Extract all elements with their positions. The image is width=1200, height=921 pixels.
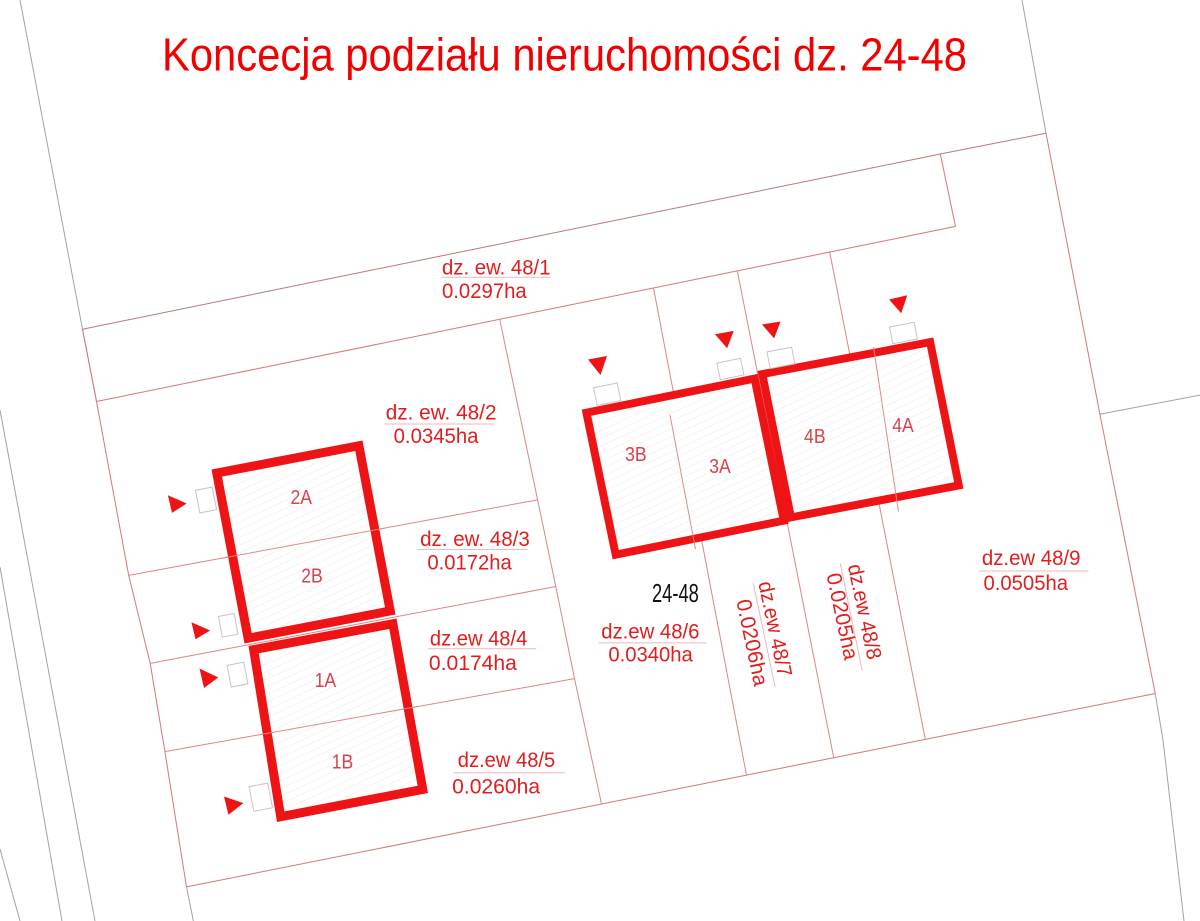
svg-text:0.0340ha: 0.0340ha [608, 643, 693, 666]
svg-text:dz.ew 48/9: dz.ew 48/9 [982, 547, 1081, 570]
svg-text:3B: 3B [625, 444, 647, 466]
svg-text:4B: 4B [804, 426, 826, 448]
svg-text:dz. ew. 48/1: dz. ew. 48/1 [442, 256, 551, 279]
svg-text:2A: 2A [290, 487, 312, 509]
svg-text:1B: 1B [332, 751, 354, 773]
svg-text:3A: 3A [709, 456, 731, 478]
svg-text:0.0172ha: 0.0172ha [427, 552, 512, 575]
svg-text:dz.ew 48/5: dz.ew 48/5 [458, 749, 555, 772]
svg-text:0.0174ha: 0.0174ha [429, 652, 517, 675]
svg-text:24-48: 24-48 [652, 579, 699, 608]
svg-text:dz. ew. 48/3: dz. ew. 48/3 [420, 528, 530, 551]
svg-text:0.0345ha: 0.0345ha [394, 425, 479, 448]
svg-text:2B: 2B [301, 566, 323, 588]
svg-text:dz.ew 48/6: dz.ew 48/6 [601, 621, 699, 644]
svg-text:1A: 1A [315, 670, 337, 692]
svg-text:dz.ew 48/4: dz.ew 48/4 [430, 628, 528, 651]
svg-text:0.0297ha: 0.0297ha [442, 280, 527, 303]
svg-text:Koncecja podziału nieruchomośc: Koncecja podziału nieruchomości dz. 24-4… [162, 28, 967, 80]
svg-text:0.0260ha: 0.0260ha [452, 776, 540, 799]
svg-text:4A: 4A [892, 415, 914, 437]
svg-text:dz. ew. 48/2: dz. ew. 48/2 [386, 402, 497, 425]
svg-text:0.0505ha: 0.0505ha [984, 572, 1069, 595]
